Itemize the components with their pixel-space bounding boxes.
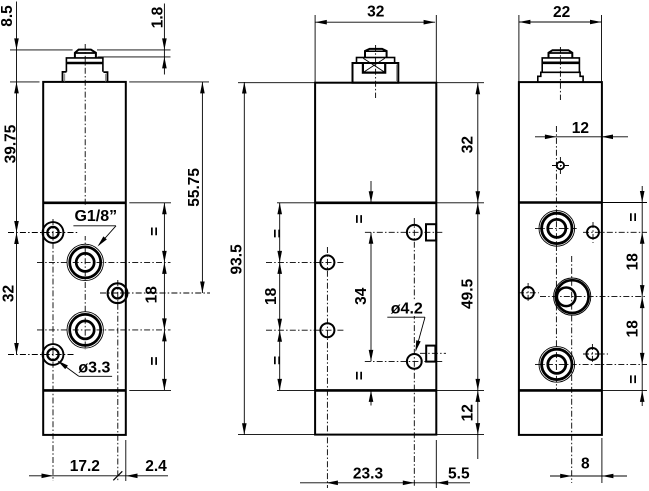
svg-text:1.8: 1.8 [150, 6, 167, 28]
svg-text:55.75: 55.75 [186, 168, 203, 207]
svg-text:8: 8 [581, 456, 590, 473]
svg-text:18: 18 [144, 286, 161, 304]
svg-text:2.4: 2.4 [145, 458, 167, 475]
svg-text:ø3.3: ø3.3 [78, 360, 110, 377]
svg-text:93.5: 93.5 [228, 244, 245, 275]
svg-text:39.75: 39.75 [3, 124, 20, 163]
svg-text:=: = [626, 375, 643, 384]
svg-text:22: 22 [553, 4, 570, 21]
svg-text:=: = [270, 356, 287, 365]
svg-text:=: = [147, 227, 164, 236]
svg-text:=: = [626, 213, 643, 222]
svg-text:=: = [352, 371, 369, 380]
svg-text:23.3: 23.3 [353, 466, 384, 483]
svg-text:5.5: 5.5 [448, 466, 470, 483]
svg-text:32: 32 [367, 4, 384, 21]
svg-text:49.5: 49.5 [460, 278, 477, 309]
svg-text:=: = [352, 214, 369, 223]
svg-text:32: 32 [460, 136, 477, 153]
svg-text:18: 18 [624, 320, 641, 338]
svg-text:18: 18 [263, 287, 280, 305]
svg-text:=: = [270, 229, 287, 238]
svg-text:18: 18 [624, 253, 641, 271]
svg-text:ø4.2: ø4.2 [391, 301, 423, 318]
svg-text:G1/8”: G1/8” [74, 208, 117, 225]
svg-text:8.5: 8.5 [0, 5, 16, 27]
svg-text:17.2: 17.2 [70, 458, 100, 475]
svg-text:32: 32 [1, 285, 18, 302]
svg-text:=: = [147, 356, 164, 365]
svg-text:34: 34 [353, 287, 370, 305]
svg-text:12: 12 [460, 404, 477, 421]
svg-text:12: 12 [572, 120, 589, 137]
